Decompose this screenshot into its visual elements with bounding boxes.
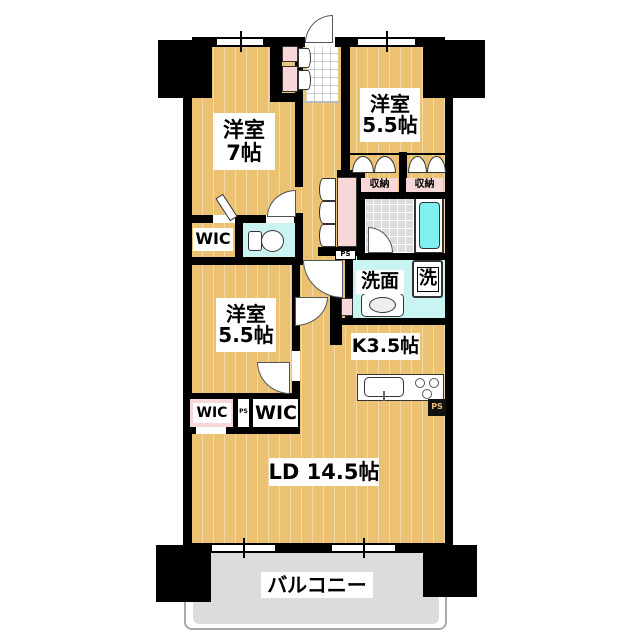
shoe-cabinet	[282, 66, 298, 92]
label-ps-lower: PS	[238, 407, 249, 418]
wall-entry-notch-v	[270, 37, 282, 99]
bedroom7-name: 洋室	[223, 119, 265, 141]
wall-wc-bottom	[183, 257, 303, 265]
bedroom55-top-size: 5.5帖	[362, 115, 417, 136]
wall-right	[445, 43, 453, 553]
room-label-kitchen: K3.5帖	[351, 333, 420, 360]
bedroom55-mid-name: 洋室	[226, 304, 266, 325]
toilet-tank	[248, 231, 262, 251]
label-storage-right: 収納	[406, 178, 443, 192]
stove-burner	[429, 378, 439, 388]
room-label-bedroom55-mid: 洋室 5.5帖	[216, 298, 276, 352]
entry-genkan-tile	[306, 43, 338, 102]
label-washer: 洗	[417, 267, 439, 292]
bedroom7-size: 7帖	[226, 142, 262, 164]
kitchen-faucet	[383, 391, 385, 401]
corridor-closet-shelf	[337, 177, 357, 247]
pillar-bottom-right	[423, 545, 477, 597]
stove-burner	[422, 389, 432, 399]
bathtub	[419, 202, 440, 249]
label-wic-lower-left: WIC	[193, 403, 231, 423]
bedroom55-top-name: 洋室	[370, 94, 410, 115]
label-storage-left: 収納	[361, 178, 398, 192]
shoe-cabinet-bifold	[298, 70, 311, 90]
room-label-bedroom55-top: 洋室 5.5帖	[360, 88, 420, 142]
room-label-bedroom7: 洋室 7帖	[213, 113, 275, 170]
label-ps-kitchen: PS	[429, 401, 445, 414]
room-label-living: LD 14.5帖	[269, 458, 379, 486]
corridor-closet-trifold	[319, 178, 336, 201]
entrance-door	[305, 15, 333, 43]
shoe-cabinet	[282, 46, 298, 62]
washbasin-bowl	[369, 297, 396, 313]
corridor-closet-trifold	[319, 201, 336, 224]
floor-plan: 洋室 7帖 洋室 5.5帖 洋室 5.5帖 K3.5帖 LD 14.5帖 洗面 …	[0, 0, 640, 640]
genkan-step-line	[303, 101, 341, 103]
wall-wic-toilet-divider	[235, 215, 243, 265]
bedroom55-mid-size: 5.5帖	[218, 325, 273, 346]
stove-burner	[415, 378, 425, 388]
room-label-balcony: バルコニー	[261, 572, 373, 598]
wall-bath-washroom	[357, 253, 447, 260]
window-tick	[386, 31, 388, 52]
wic-lower-left-opening	[196, 427, 226, 434]
label-wic-lower-right: WIC	[254, 401, 298, 426]
pillar-bottom-left	[156, 545, 211, 602]
shaft-box	[341, 298, 353, 316]
toilet-bowl	[261, 230, 284, 252]
corridor-closet-trifold	[319, 224, 336, 247]
window-tick	[363, 538, 365, 558]
room-label-washroom: 洗面	[356, 270, 404, 294]
window-tick	[243, 538, 245, 558]
wall-washroom-bottom	[337, 318, 447, 325]
shoe-cabinet-bifold	[298, 48, 311, 68]
pillar-top-right	[423, 40, 485, 98]
bedroom-mid-slide-gap	[292, 350, 300, 382]
label-wic-upper: WIC	[193, 228, 233, 251]
wall-left	[183, 43, 192, 553]
wall-entry-notch-h	[270, 93, 303, 102]
window-tick	[240, 31, 242, 52]
storage-front-line	[350, 153, 447, 155]
pillar-top-left	[158, 40, 212, 98]
label-ps-corridor: PS	[335, 250, 356, 260]
